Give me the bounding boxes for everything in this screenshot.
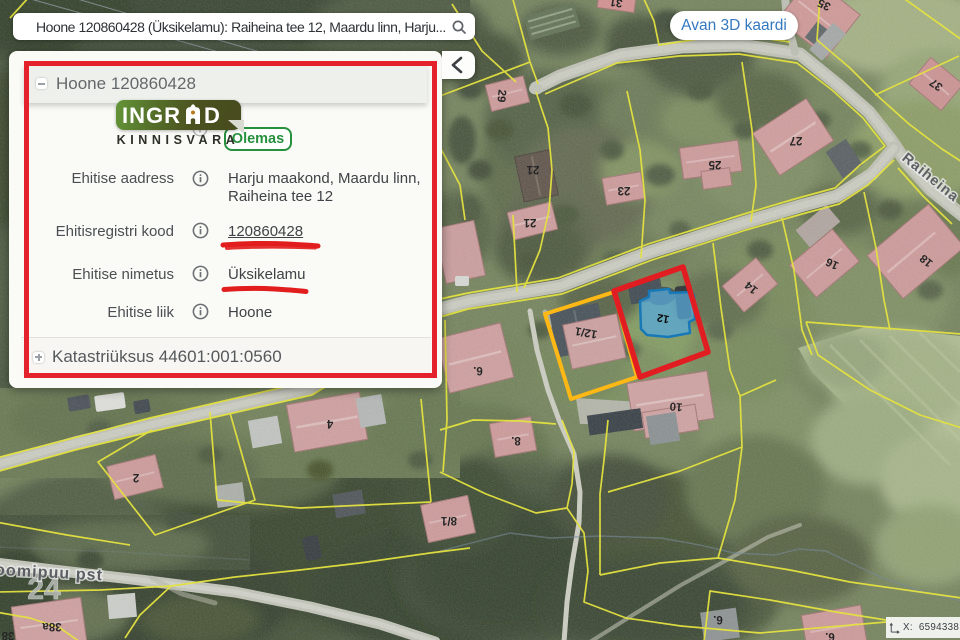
svg-text:D: D bbox=[204, 103, 221, 127]
svg-text:INGR: INGR bbox=[122, 103, 181, 127]
svg-text:12: 12 bbox=[656, 311, 670, 325]
